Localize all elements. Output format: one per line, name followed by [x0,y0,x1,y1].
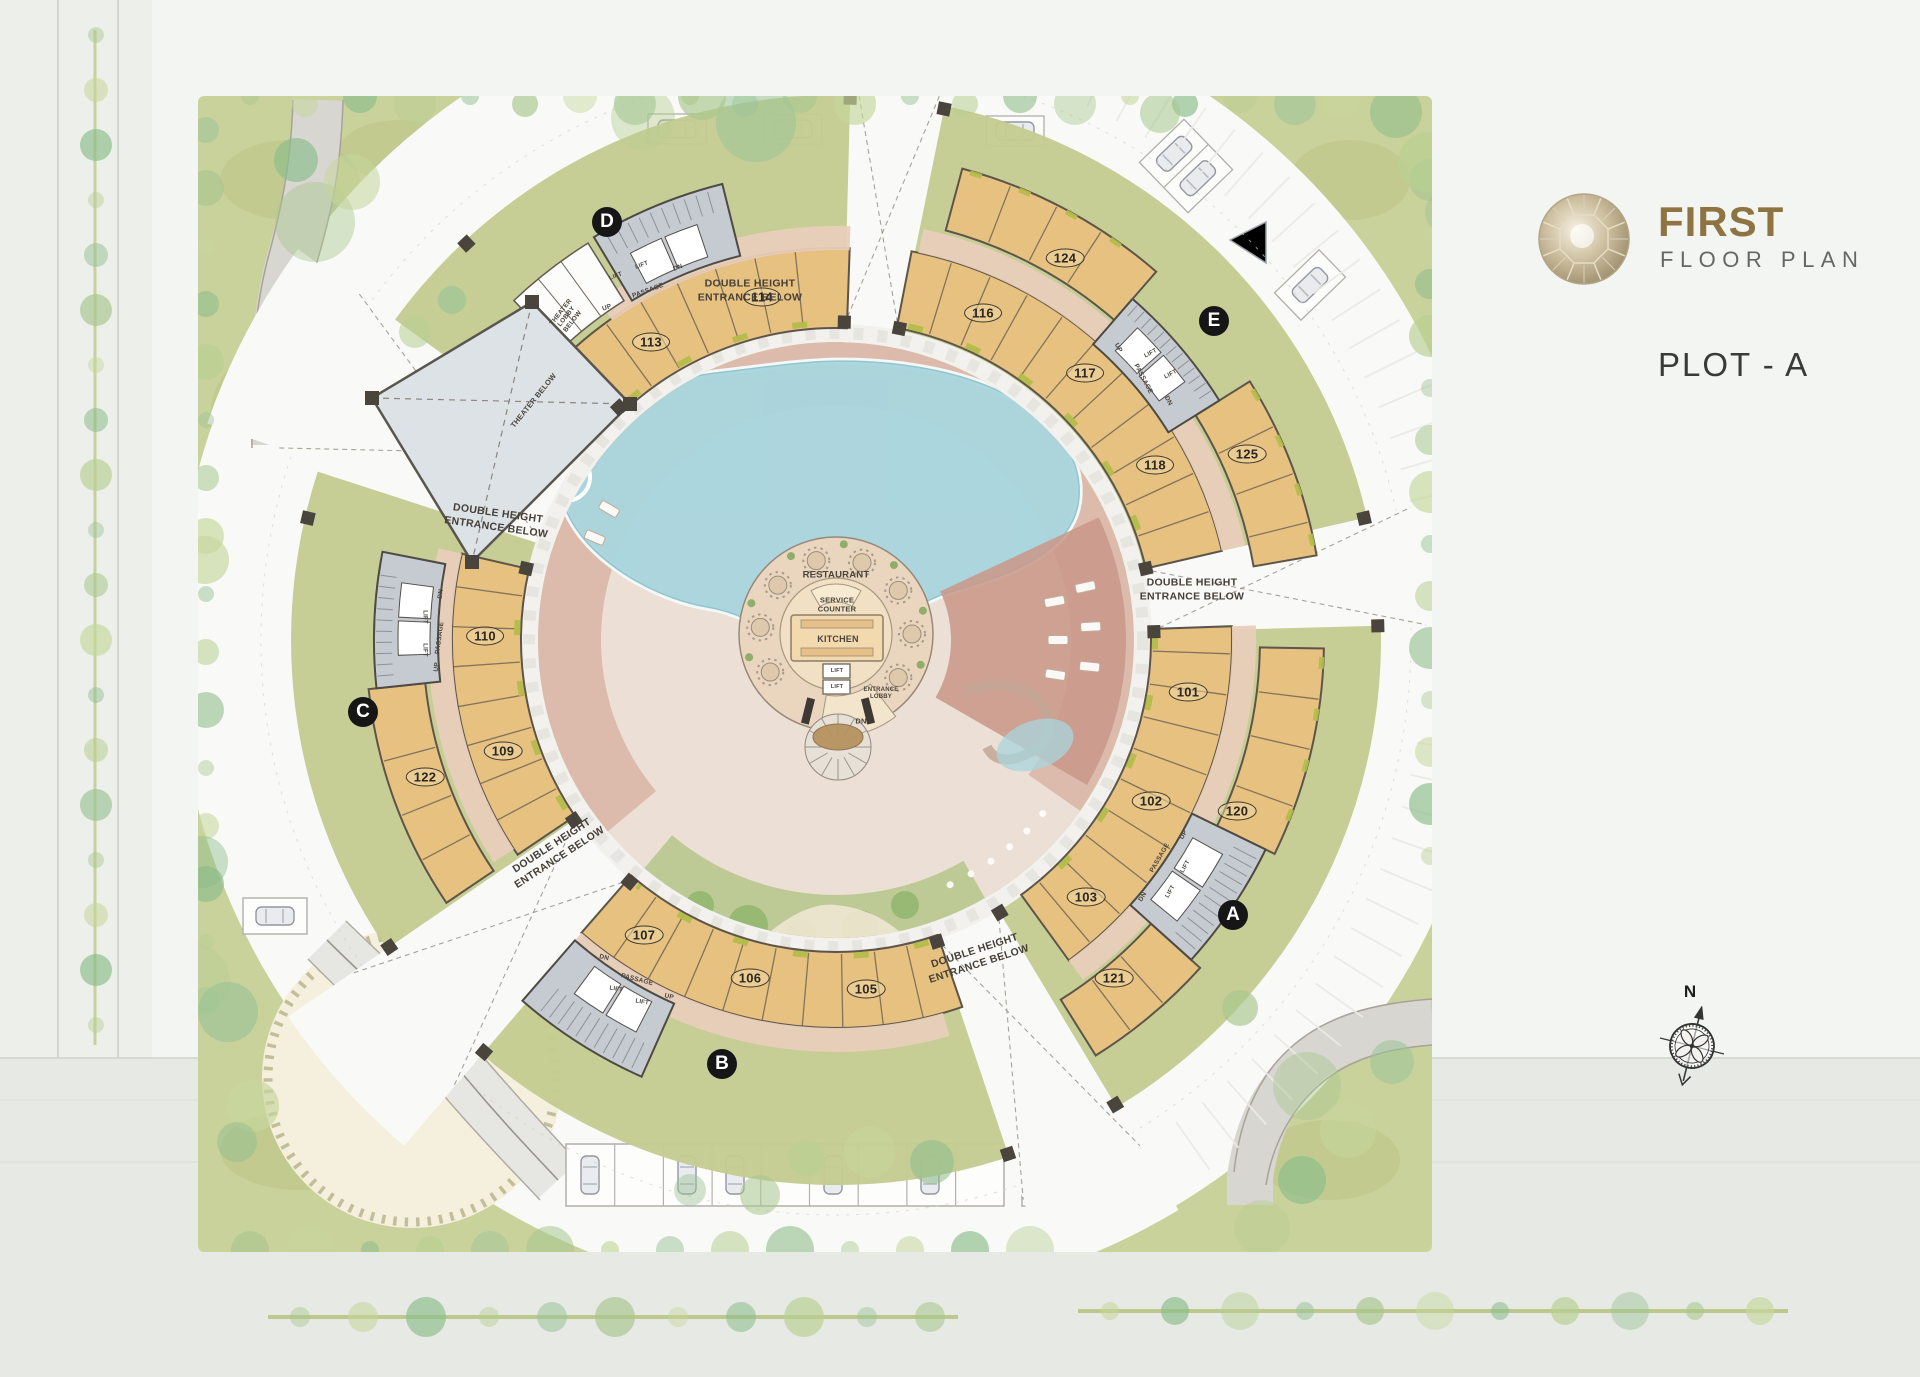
page-subtitle: FLOOR PLAN [1660,247,1864,273]
compass-icon [1648,1006,1740,1092]
gem-logo-icon [1536,191,1632,287]
compass-north-label: N [1684,982,1696,1002]
plot-label: PLOT - A [1658,346,1809,384]
page-title: FIRST [1658,198,1784,246]
site-plan-drawing [0,0,1920,1377]
floor-plan-page: 1131141161241171181251101091221071061051… [0,0,1920,1377]
